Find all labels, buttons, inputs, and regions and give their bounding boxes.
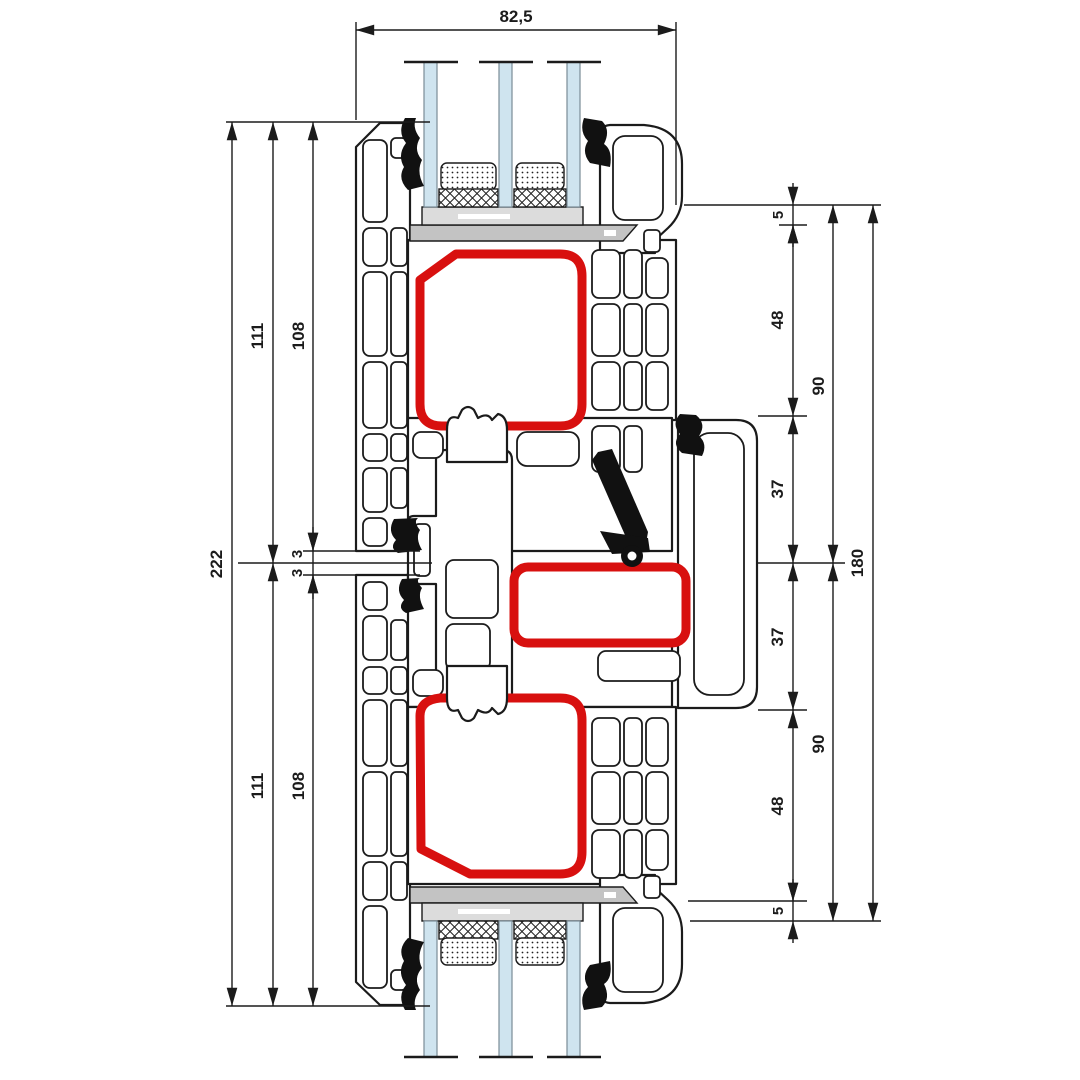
dimension-left-222: 222 <box>207 122 232 1006</box>
dimension-left-108-lower: 108 <box>289 575 313 1006</box>
dim-label-48-top: 48 <box>768 311 787 330</box>
glass-pane <box>499 62 512 207</box>
dim-label-48-bottom: 48 <box>768 797 787 816</box>
dim-label-5-top: 5 <box>770 211 787 219</box>
dimension-left-108-upper: 108 <box>289 122 313 551</box>
dim-label-3-lower: 3 <box>289 569 306 577</box>
drawing-canvas: 82,5 222 111 111 108 3 3 <box>0 0 1080 1080</box>
dim-label-180: 180 <box>848 549 867 577</box>
dimension-right-37-bottom: 37 <box>768 563 793 710</box>
dimension-right-48-bottom: 48 <box>768 710 793 901</box>
dimension-right-37-top: 37 <box>768 416 793 563</box>
dimension-left-111-upper: 111 <box>248 122 273 563</box>
glass-pane <box>567 62 580 207</box>
dim-label-111-upper: 111 <box>248 323 267 350</box>
spacer-dotted-bottom-1 <box>441 938 496 965</box>
dimension-right-48-top: 48 <box>768 225 793 416</box>
dim-label-5-bottom: 5 <box>770 907 787 915</box>
glass-pane <box>499 921 512 1057</box>
glass-pane <box>424 921 437 1057</box>
dim-label-108-lower: 108 <box>289 772 308 800</box>
dimension-right-180: 180 <box>848 205 873 921</box>
spacer-cross-top-1 <box>439 189 498 207</box>
upper-bead-chamber <box>613 136 663 220</box>
dimension-left-111-lower: 111 <box>248 563 273 1006</box>
gasket-glass-top-left <box>401 118 424 190</box>
glazing-bridge-bottom <box>410 887 637 903</box>
dim-label-37-top: 37 <box>768 480 787 499</box>
spacer-cross-bottom-2 <box>514 921 566 939</box>
gasket-glass-bottom-left <box>401 938 424 1010</box>
steel-chamber-middle <box>514 567 686 643</box>
dim-label-37-bottom: 37 <box>768 628 787 647</box>
technical-drawing-window-section: 82,5 222 111 111 108 3 3 <box>0 0 1080 1080</box>
glass-pane <box>424 62 437 207</box>
glass-pane <box>567 921 580 1057</box>
glazing-bridge-top <box>410 225 637 241</box>
dim-label-111-lower: 111 <box>248 773 267 800</box>
upper-bead-foot <box>644 230 660 252</box>
dim-label-3-upper: 3 <box>289 550 306 558</box>
spacer-cross-bottom-1 <box>439 921 498 939</box>
dim-label-90-bottom: 90 <box>809 735 828 754</box>
spacer-dotted-top-2 <box>516 163 564 190</box>
spacer-dotted-top-1 <box>441 163 496 190</box>
dimension-right-5-top: 5 <box>770 183 793 247</box>
dim-label-90-top: 90 <box>809 377 828 396</box>
dim-label-108-upper: 108 <box>289 322 308 350</box>
lower-bead-chamber <box>613 908 663 992</box>
dimension-right-90-bottom: 90 <box>809 563 833 921</box>
spacer-cross-top-2 <box>514 189 566 207</box>
steel-chamber-lower <box>420 698 582 874</box>
steel-chamber-upper <box>420 254 582 426</box>
dim-label-top-width: 82,5 <box>499 7 532 26</box>
spacer-dotted-bottom-2 <box>516 938 564 965</box>
dimension-right-5-bottom: 5 <box>770 879 793 943</box>
dim-label-222: 222 <box>207 550 226 578</box>
dimension-right-90-top: 90 <box>809 205 833 563</box>
stulp-chamber <box>694 433 744 695</box>
lower-bead-foot <box>644 876 660 898</box>
